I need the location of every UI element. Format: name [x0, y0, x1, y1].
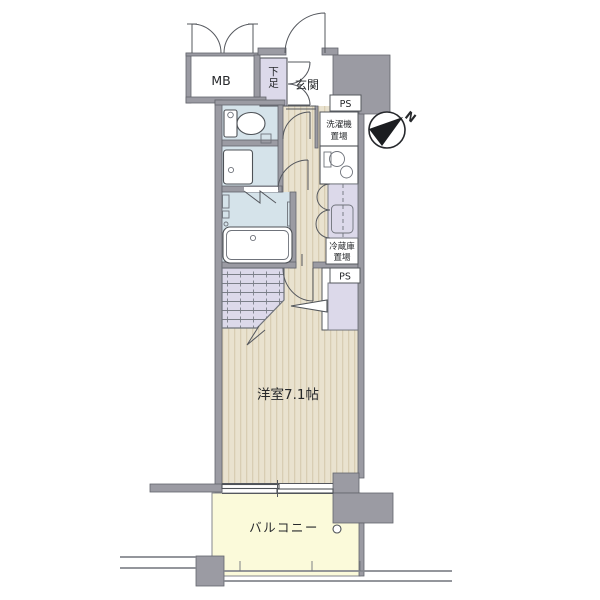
wall-hall-washer [315, 106, 318, 148]
wall-left-outer [215, 100, 222, 492]
window-sash-right [277, 489, 333, 493]
wall-toilet-wash-divider [222, 140, 282, 146]
compass-north-label: N [402, 108, 419, 125]
ps-top-label: PS [340, 99, 352, 110]
wall-window-stub [150, 484, 222, 492]
structural-block-bottom-right-lower [333, 493, 393, 523]
neighbor-partition-lines [120, 557, 196, 568]
mb-label: MB [211, 73, 230, 88]
balcony-drain [333, 525, 341, 533]
wall-mb-left [186, 53, 191, 103]
washer-label-1: 洗濯機 [326, 119, 352, 130]
genkan-label: 玄関 [295, 77, 319, 92]
wall-entry-right-jamb [322, 48, 338, 55]
wall-entry-left-jamb [258, 48, 286, 55]
fridge-label-1: 冷蔵庫 [329, 241, 355, 252]
main-room-label: 洋室7.1帖 [257, 386, 319, 403]
hallway-floor-lower [296, 192, 330, 268]
toilet-bowl [237, 113, 265, 135]
entrance-door [285, 13, 325, 53]
fridge-label-2: 置場 [333, 252, 351, 263]
mb-double-doors [187, 24, 258, 53]
floorplan-page: PS 洗濯機 置場 冷蔵庫 置場 PS [0, 0, 600, 600]
structural-block-bottom-left [196, 556, 224, 586]
wall-right-outer [358, 111, 364, 478]
washbasin [224, 150, 253, 184]
toilet-tank [224, 110, 237, 137]
structural-block-bottom-right-upper [333, 473, 359, 493]
floorplan-canvas: PS 洗濯機 置場 冷蔵庫 置場 PS [0, 0, 600, 600]
shoe-label: 下足 [267, 66, 279, 89]
balcony-label: バルコニー [249, 520, 319, 535]
ps-mid-label: PS [339, 272, 351, 283]
bathtub [223, 227, 292, 263]
wall-mb-shoe-divider [254, 55, 260, 97]
washer-label-2: 置場 [330, 131, 348, 142]
wall-mb-top [186, 53, 258, 56]
storage-floor [328, 283, 358, 330]
window-sash-left [222, 485, 279, 489]
wall-toilet-top [215, 100, 285, 105]
